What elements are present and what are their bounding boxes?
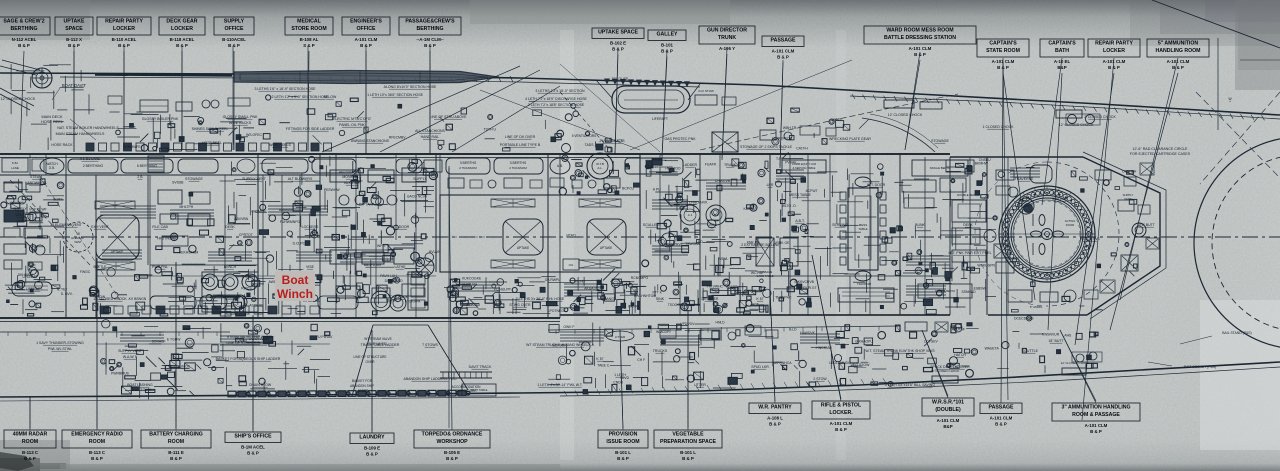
svg-text:B-101 L: B-101 L	[680, 450, 696, 455]
svg-text:A-101 CLM: A-101 CLM	[830, 421, 853, 426]
svg-text:B & P: B & P	[995, 422, 1007, 427]
svg-text:2 EXTRA FIRE BILLOW: 2 EXTRA FIRE BILLOW	[741, 243, 779, 247]
svg-text:ALT BLOWERS: ALT BLOWERS	[288, 177, 313, 181]
svg-text:S & P: S & P	[303, 43, 315, 48]
svg-text:BATTLE: BATTLE	[94, 265, 108, 269]
svg-text:12' CLOSED CHOCK: 12' CLOSED CHOCK	[888, 113, 923, 117]
svg-text:LLURBVFOC: LLURBVFOC	[772, 137, 793, 141]
svg-text:A-101 CLM: A-101 CLM	[355, 37, 378, 42]
svg-text:ROOM: ROOM	[89, 439, 105, 445]
svg-text:4 LETH 7'2"x 18'9" DISCHARGE: 4 LETH 7'2"x 18'9" DISCHARGE HOSE	[525, 97, 587, 101]
svg-text:DELOUSE: DELOUSE	[612, 77, 629, 81]
svg-text:PREPARATION SPACE: PREPARATION SPACE	[660, 439, 716, 445]
svg-text:DECK GEAR: DECK GEAR	[166, 19, 197, 25]
svg-text:CAT.FH: CAT.FH	[796, 146, 808, 150]
svg-text:HANDWHEEL: HANDWHEEL	[25, 181, 47, 185]
svg-text:BATH: BATH	[1055, 48, 1069, 54]
svg-text:LKR: LKR	[767, 183, 774, 187]
svg-text:SINGLE BERTH: SINGLE BERTH	[930, 166, 950, 170]
svg-text:A.1: A.1	[688, 213, 693, 217]
svg-text:DAVIT TRACK: DAVIT TRACK	[469, 365, 492, 369]
svg-text:B-105 E: B-105 E	[444, 450, 460, 455]
svg-text:STO HH: STO HH	[138, 388, 151, 392]
svg-text:DCECDMAB: DCECDMAB	[1014, 317, 1034, 321]
svg-text:SUPPLY: SUPPLY	[13, 207, 27, 211]
svg-text:A-101 CLM: A-101 CLM	[1085, 423, 1108, 428]
svg-text:E TGHW: E TGHW	[167, 337, 181, 341]
svg-text:VEG STOW: VEG STOW	[851, 363, 870, 367]
svg-text:TRUNK: TRUNK	[724, 163, 737, 167]
svg-text:3 LETHS 1'2"x 18'-0" SECTION: 3 LETHS 1'2"x 18'-0" SECTION	[535, 89, 585, 93]
svg-text:.BVUVN: .BVUVN	[428, 250, 441, 254]
svg-text:B & P: B & P	[1172, 65, 1184, 70]
svg-text:.AHS: .AHS	[1063, 333, 1072, 337]
svg-text:ABVVBN: ABVVBN	[234, 217, 248, 221]
svg-text:B&P: B&P	[1057, 65, 1066, 70]
svg-text:PANEL OIL PNK: PANEL OIL PNK	[339, 123, 365, 127]
svg-text:GACO NCVA: GACO NCVA	[407, 195, 428, 199]
svg-text:SINK: SINK	[656, 297, 665, 301]
svg-text:B & P: B & P	[446, 456, 458, 461]
svg-text:A-101 CLM: A-101 CLM	[772, 49, 795, 54]
svg-text:TOOL RACK: TOOL RACK	[388, 295, 409, 299]
svg-text:VENT: VENT	[74, 240, 82, 244]
svg-text:W.R. PANTRY: W.R. PANTRY	[758, 405, 792, 411]
svg-text:UPTAKE: UPTAKE	[111, 250, 124, 254]
svg-text:Boat: Boat	[282, 273, 309, 287]
svg-text:1 LETH: 1 LETH	[614, 373, 626, 377]
svg-text:.KV BSNGN: .KV BSNGN	[128, 297, 147, 301]
svg-text:READY SVC: READY SVC	[1080, 237, 1101, 241]
svg-text:LADDER: LADDER	[683, 163, 698, 167]
svg-text:1 LETH 10"x 36'6" SECTION HOSE: 1 LETH 10"x 36'6" SECTION HOSE	[367, 93, 424, 97]
svg-text:2 VENT DUCTS: 2 VENT DUCTS	[599, 139, 625, 143]
svg-text:GUN DIRECTOR: GUN DIRECTOR	[707, 28, 747, 34]
svg-text:WAUETA: WAUETA	[985, 346, 1000, 350]
svg-text:12' CLOSED CHOCK: 12' CLOSED CHOCK	[1061, 361, 1090, 365]
svg-text:N-112 ACEL: N-112 ACEL	[12, 37, 37, 42]
svg-text:FUAFR: FUAFR	[705, 163, 717, 167]
svg-text:K 57: K 57	[596, 357, 603, 361]
svg-text:BBNFD.MS: BBNFD.MS	[364, 263, 382, 267]
svg-text:LADDER: LADDER	[356, 389, 370, 393]
svg-text:RWSNVUR: RWSNVUR	[1042, 332, 1060, 336]
svg-text:REPAIR PARTY: REPAIR PARTY	[1095, 41, 1133, 47]
svg-text:BCPCU: BCPCU	[622, 187, 634, 191]
svg-text:GAS PROTEC PNK: GAS PROTEC PNK	[664, 137, 696, 141]
svg-text:CAPTAIN'S: CAPTAIN'S	[989, 41, 1017, 47]
svg-text:HOIST: HOIST	[1009, 257, 1021, 261]
svg-text:SAGE & CREW'2: SAGE & CREW'2	[3, 19, 44, 25]
svg-text:TRUCKS: TRUCKS	[653, 349, 668, 353]
svg-text:VISE: VISE	[306, 265, 315, 269]
svg-text:B & P: B & P	[228, 43, 240, 48]
svg-text:HELDVNCN: HELDVNCN	[339, 170, 358, 174]
svg-text:OFFICE: OFFICE	[356, 26, 376, 32]
svg-text:2 LETH 5'8"x14'6" BILL SAVING: 2 LETH 5'8"x14'6" BILL SAVING	[885, 383, 935, 387]
svg-text:W.T. DOOR: W.T. DOOR	[391, 225, 410, 229]
svg-text:CH F: CH F	[637, 358, 645, 362]
svg-text:WCTSE: WCTSE	[751, 271, 764, 275]
svg-text:W.R.S.R.*101: W.R.S.R.*101	[932, 400, 964, 406]
svg-text:BKMHW: BKMHW	[975, 162, 989, 166]
svg-text:B-111 E: B-111 E	[168, 450, 184, 455]
svg-text:ENGINEER'S: ENGINEER'S	[350, 19, 382, 25]
svg-text:FWGC: FWGC	[80, 270, 91, 274]
svg-text:SPACE: SPACE	[65, 26, 83, 32]
svg-text:UPTAKE: UPTAKE	[517, 246, 530, 250]
svg-text:WT STEAM TRUCKS W/HAND WHEELS: WT STEAM TRUCKS W/HAND WHEELS A	[526, 343, 594, 347]
svg-text:WLTO .O: WLTO .O	[782, 204, 796, 208]
svg-text:A-101 CLM: A-101 CLM	[937, 418, 960, 423]
svg-text:TRUNK: TRUNK	[718, 35, 736, 41]
svg-text:LOCKER: LOCKER	[113, 26, 135, 32]
svg-text:DESK: DESK	[963, 223, 973, 227]
svg-text:3" AMMUNITION HANDLING: 3" AMMUNITION HANDLING	[1061, 405, 1130, 411]
svg-text:1 LETH 4'x 30'-14" PWL W.T.: 1 LETH 4'x 30'-14" PWL W.T.	[537, 383, 583, 387]
svg-text:LIFERAFT: LIFERAFT	[652, 117, 668, 121]
svg-text:HANDLING ROOM: HANDLING ROOM	[1156, 48, 1201, 54]
svg-text:HOSE REEL: HOSE REEL	[202, 141, 222, 145]
svg-text:A-101 CLM: A-101 CLM	[990, 416, 1013, 421]
svg-text:PVSAE: PVSAE	[785, 160, 797, 164]
svg-text:SVSSB: SVSSB	[172, 180, 184, 184]
svg-text:S.B.I: S.B.I	[12, 161, 19, 165]
svg-text:G.B.: G.B.	[49, 166, 55, 170]
svg-text:A PU: A PU	[653, 188, 661, 192]
svg-text:B-113 C: B-113 C	[22, 450, 39, 455]
svg-text:KUKCOGKE: KUKCOGKE	[462, 277, 482, 281]
svg-text:STOWAGE: STOWAGE	[185, 177, 203, 181]
svg-text:LIFERAFT: LIFERAFT	[26, 287, 43, 291]
svg-text:STWG CUTR: STWG CUTR	[509, 303, 531, 307]
svg-text:PM.VWHC: PM.VWHC	[707, 285, 724, 289]
svg-text:5-IN GUN: 5-IN GUN	[1052, 197, 1068, 201]
svg-text:5 VENTILATORS: 5 VENTILATORS	[572, 134, 597, 138]
svg-text:AAUTAF: AAUTAF	[952, 327, 965, 331]
svg-text:LINE OF STRUCTURE OVER: LINE OF STRUCTURE OVER	[226, 341, 274, 345]
svg-text:RFECMBV: RFECMBV	[389, 136, 406, 140]
svg-text:FTOKRPA: FTOKRPA	[405, 300, 421, 304]
svg-text:5" AMMN: 5" AMMN	[1030, 305, 1043, 309]
svg-text:[AT&T]: [AT&T]	[566, 233, 575, 237]
svg-text:VEGETABLE: VEGETABLE	[672, 432, 704, 438]
svg-text:WORKSHOP: WORKSHOP	[436, 439, 468, 445]
svg-text:LATHE: LATHE	[394, 265, 406, 269]
svg-text:STOW: STOW	[95, 295, 106, 299]
svg-text:6 BERTHING: 6 BERTHING	[137, 164, 158, 168]
svg-text:WIRE REELS: WIRE REELS	[269, 143, 291, 147]
svg-text:Winch: Winch	[277, 287, 313, 301]
svg-text:FILE CAB: FILE CAB	[464, 303, 480, 307]
svg-text:2 LETH 1'2" x 9'-0" SECTION H: 2 LETH 1'2" x 9'-0" SECTION HOSE	[272, 95, 329, 99]
svg-text:B & P: B & P	[777, 55, 789, 60]
svg-text:REPAIR PARTY: REPAIR PARTY	[105, 19, 143, 25]
svg-text:12' CLOSED CHOCK: 12' CLOSED CHOCK	[1, 97, 36, 101]
svg-text:A.L.: A.L.	[597, 166, 603, 170]
svg-text:B-101 L: B-101 L	[615, 450, 631, 455]
svg-text:WFFF: WFFF	[377, 244, 386, 248]
svg-text:SPUD LKR: SPUD LKR	[751, 365, 769, 369]
svg-text:TRACK TABLE LADDER: TRACK TABLE LADDER	[361, 343, 400, 347]
svg-text:W.T. DOOR: W.T. DOOR	[867, 183, 886, 187]
svg-text:MHLTPH: MHLTPH	[180, 205, 194, 209]
svg-text:STOWAGE: STOWAGE	[931, 139, 949, 143]
svg-text:ABANDON SHIP: ABANDON SHIP	[350, 384, 374, 388]
svg-text:WS.OFEC: WS.OFEC	[246, 133, 262, 137]
svg-text:DESK: DESK	[225, 225, 235, 229]
svg-text:A-101 CLM: A-101 CLM	[1167, 59, 1190, 64]
svg-text:FUHWMNFG: FUHWMNFG	[280, 220, 301, 224]
svg-text:CNDD: CNDD	[613, 380, 623, 384]
svg-text:BOAT LASHING: BOAT LASHING	[127, 383, 153, 387]
svg-text:MAIN DECK: MAIN DECK	[41, 115, 63, 119]
svg-text:MESS: MESS	[1022, 204, 1030, 208]
svg-text:HAWDVK: HAWDVK	[800, 331, 815, 335]
svg-text:W.A.W.T.: W.A.W.T.	[123, 355, 137, 359]
svg-text:18 ELEMENT VENT: 18 ELEMENT VENT	[50, 223, 83, 227]
svg-text:2 LETHS 3'x 36'-0" P.HL HOSE: 2 LETHS 3'x 36'-0" P.HL HOSE	[516, 297, 565, 301]
svg-text:A.B.T.: A.B.T.	[795, 219, 805, 223]
svg-text:LINE OF DK OVER: LINE OF DK OVER	[505, 135, 536, 139]
svg-text:BUNK: BUNK	[915, 223, 925, 227]
svg-text:FTT K: FTT K	[653, 291, 663, 295]
svg-text:GALLEY: GALLEY	[656, 32, 678, 38]
svg-text:B & P: B & P	[24, 456, 36, 461]
svg-text:BAIL STAND (P&S): BAIL STAND (P&S)	[1222, 331, 1251, 335]
svg-text:BATTERY CHARGING: BATTERY CHARGING	[149, 432, 203, 438]
svg-text:CHWCVB: CHWCVB	[715, 179, 731, 183]
svg-text:TADS: TADS	[585, 143, 595, 147]
svg-text:STEAM VALVE SHIP WHEEL: STEAM VALVE SHIP WHEEL	[227, 335, 273, 339]
svg-text:DKHMNN: DKHMNN	[18, 273, 33, 277]
svg-text:WKKUGPN: WKKUGPN	[977, 264, 995, 268]
svg-text:PWRBMUS: PWRBMUS	[111, 372, 129, 376]
svg-text:TNANPHC: TNANPHC	[775, 296, 792, 300]
svg-text:LAUNDRY: LAUNDRY	[359, 435, 385, 441]
svg-text:1 CLOSED CHOCK: 1 CLOSED CHOCK	[983, 125, 1015, 129]
svg-text:PASSAGE&CREW'S: PASSAGE&CREW'S	[405, 19, 455, 25]
svg-text:STORE ROOM: STORE ROOM	[291, 26, 326, 32]
svg-text:GGBS: GGBS	[53, 197, 64, 201]
svg-text:BASKET FOR AQUEOUS SHIP LADDER: BASKET FOR AQUEOUS SHIP LADDER	[216, 357, 281, 361]
svg-text:2 TRANSOM: 2 TRANSOM	[459, 166, 477, 170]
svg-text:2 LETH 7'2"x 18'8" SECTION HO: 2 LETH 7'2"x 18'8" SECTION HOSE	[528, 103, 585, 107]
svg-text:2' CLOSED CHOCK: 2' CLOSED CHOCK	[1084, 115, 1116, 119]
svg-text:ASDP.SD: ASDP.SD	[249, 303, 264, 307]
svg-text:EMERGENCY RADIO: EMERGENCY RADIO	[71, 432, 123, 438]
svg-text:7 STOWS: 7 STOWS	[422, 343, 438, 347]
svg-text:B & P: B & P	[769, 422, 781, 427]
svg-text:SUPPLY: SUPPLY	[413, 177, 427, 181]
svg-text:LANE: LANE	[11, 166, 19, 170]
svg-text:B-1M ACEL: B-1M ACEL	[241, 445, 265, 450]
svg-text:DOOR: DOOR	[1066, 223, 1074, 227]
svg-text:EDRMWFE: EDRMWFE	[123, 145, 141, 149]
svg-text:3 BERTHS: 3 BERTHS	[510, 161, 527, 165]
svg-text:HNLD: HNLD	[716, 321, 726, 325]
svg-text:AEKHSTMM: AEKHSTMM	[179, 250, 198, 254]
svg-text:HFUTNCHL: HFUTNCHL	[157, 237, 175, 241]
svg-text:PASSAGE: PASSAGE	[989, 405, 1015, 411]
svg-text:B-101: B-101	[661, 43, 674, 48]
svg-text:BASKET FOR: BASKET FOR	[352, 379, 373, 383]
svg-text:A-108 L: A-108 L	[767, 416, 783, 421]
svg-text:18" BUTT: 18" BUTT	[1048, 339, 1064, 343]
svg-text:MEDICAL: MEDICAL	[297, 19, 321, 25]
svg-text:LOCKER: LOCKER	[171, 26, 193, 32]
svg-text:OIL: OIL	[569, 263, 574, 267]
svg-text:B-113 C: B-113 C	[89, 450, 106, 455]
svg-text:UTTER: UTTER	[694, 383, 706, 387]
svg-text:B-110ACEL: B-110ACEL	[222, 37, 246, 42]
svg-text:4'x4' STOW: 4'x4' STOW	[698, 89, 714, 93]
svg-text:STOWAGE OF 2 SKIPS TACKLE: STOWAGE OF 2 SKIPS TACKLE	[740, 145, 793, 149]
svg-text:TRAVERSE: TRAVERSE	[1015, 177, 1034, 181]
svg-text:ALONG 8'x10'0" SECTION HOSE: ALONG 8'x10'0" SECTION HOSE	[384, 85, 437, 89]
svg-text:OVER: OVER	[365, 360, 375, 364]
svg-text:STEAM: STEAM	[30, 175, 42, 179]
svg-text:GLOSSY SMALL PNK: GLOSSY SMALL PNK	[223, 115, 258, 119]
svg-text:. TL.T: . TL.T	[379, 258, 388, 262]
svg-text:LOCKERS: LOCKERS	[302, 225, 319, 229]
svg-text:3 BERTHS: 3 BERTHS	[460, 161, 477, 165]
svg-text:UPTAKE SPACE: UPTAKE SPACE	[598, 30, 638, 36]
svg-text:K 57: K 57	[756, 297, 763, 301]
svg-text:PORTABLE LINE TYPE B: PORTABLE LINE TYPE B	[500, 143, 541, 147]
svg-text:--A-1M CLM--: --A-1M CLM--	[416, 37, 444, 42]
svg-text:CHAIN STOW: CHAIN STOW	[249, 383, 272, 387]
svg-text:BATTLE DRESSING STATION: BATTLE DRESSING STATION	[884, 35, 956, 41]
svg-text:2 TRANSOM: 2 TRANSOM	[509, 166, 527, 170]
svg-text:DRESSER: DRESSER	[702, 297, 719, 301]
svg-text:TORPEDO& ORDNANCE: TORPEDO& ORDNANCE	[422, 432, 483, 438]
svg-text:BAIT SOCKET (P&S): BAIT SOCKET (P&S)	[1184, 365, 1216, 369]
svg-text:B & P: B & P	[617, 456, 629, 461]
svg-text:B.KKVCRVB: B.KKVCRVB	[795, 280, 815, 284]
svg-text:HATCH: HATCH	[954, 353, 966, 357]
svg-text:SCULLERY: SCULLERY	[643, 223, 662, 227]
svg-text:BERTHING: BERTHING	[10, 26, 37, 32]
svg-text:RCBCMPO: RCBCMPO	[631, 276, 649, 280]
svg-text:SHIP LADDER: SHIP LADDER	[455, 389, 477, 393]
svg-text:LOCKER: LOCKER	[1103, 48, 1125, 54]
svg-text:HOSE RACK: HOSE RACK	[51, 143, 73, 147]
svg-text:WHDUR.GT: WHDUR.GT	[798, 286, 817, 290]
svg-text:SOKACF: SOKACF	[152, 339, 166, 343]
svg-text:FILE CAB: FILE CAB	[152, 225, 168, 229]
svg-text:TDTH U: TDTH U	[484, 127, 497, 131]
svg-text:TAEE C.: TAEE C.	[597, 363, 610, 367]
svg-text:WBH.TR: WBH.TR	[783, 126, 797, 130]
svg-text:HOSE REEL: HOSE REEL	[41, 120, 63, 124]
svg-text:12'-6" RAD CLEARANCE CIRCLE: 12'-6" RAD CLEARANCE CIRCLE	[1133, 147, 1188, 151]
svg-text:2 STOW: 2 STOW	[813, 377, 827, 381]
svg-text:12' CLOSED CHOCK: 12' CLOSED CHOCK	[931, 369, 960, 373]
svg-text:10'6" BUTT: 10'6" BUTT	[1137, 223, 1156, 227]
svg-text:WIRE RACKS: WIRE RACKS	[229, 121, 252, 125]
svg-text:FU PBVAV: FU PBVAV	[316, 335, 333, 339]
svg-text:VENT: VENT	[15, 213, 25, 217]
svg-text:B & P: B & P	[1108, 65, 1120, 70]
svg-text:TRANSOM: TRANSOM	[857, 282, 872, 286]
svg-text:OWK F: OWK F	[563, 325, 574, 329]
svg-text:(DOUBLE): (DOUBLE)	[935, 407, 961, 413]
svg-text:FITTINGS FOR SIDE LADDER: FITTINGS FOR SIDE LADDER	[286, 127, 335, 131]
svg-text:MESS TABLE: MESS TABLE	[789, 193, 811, 197]
svg-text:2 B: 2 B	[137, 175, 143, 179]
svg-text:SERVING: SERVING	[832, 223, 848, 227]
svg-text:PASSAGE: PASSAGE	[771, 38, 797, 44]
svg-text:& SERVING TABLE: & SERVING TABLE	[793, 166, 816, 170]
svg-text:B & P: B & P	[91, 456, 103, 461]
svg-text:RIFLE & PISTOL: RIFLE & PISTOL	[821, 403, 862, 409]
svg-text:AEFRNHCA: AEFRNHCA	[773, 361, 792, 365]
svg-text:SUPPLY: SUPPLY	[224, 19, 245, 25]
svg-text:LINE OF STRUCTURE: LINE OF STRUCTURE	[354, 355, 387, 359]
svg-text:B&P: B&P	[943, 424, 952, 429]
svg-text:FOR EJECTED CARTRIDGE CASES: FOR EJECTED CARTRIDGE CASES	[1130, 152, 1191, 156]
svg-text:AWNING STANCHIONS: AWNING STANCHIONS	[351, 139, 390, 143]
svg-text:B & P: B & P	[1090, 429, 1102, 434]
svg-text:PROVISION: PROVISION	[609, 432, 638, 438]
svg-text:BERTHING: BERTHING	[416, 26, 443, 32]
svg-text:B & P: B & P	[682, 456, 694, 461]
svg-text:SHIP'S OFFICE: SHIP'S OFFICE	[234, 434, 272, 440]
svg-text:ALL STANCHIONS: ALL STANCHIONS	[415, 129, 445, 133]
svg-text:WMCDP: WMCDP	[656, 330, 670, 334]
svg-text:SHINES SIGNAL REEL: SHINES SIGNAL REEL	[192, 127, 229, 131]
svg-text:A-101 CLM: A-101 CLM	[909, 46, 932, 51]
svg-text:B & P: B & P	[247, 451, 259, 456]
svg-text:B & P: B & P	[170, 456, 182, 461]
svg-text:B & P: B & P	[835, 427, 847, 432]
svg-text:MOVEABLE: MOVEABLE	[342, 175, 362, 179]
svg-text:B-118 ACEL: B-118 ACEL	[170, 37, 195, 42]
svg-text:BENCH: BENCH	[224, 265, 237, 269]
svg-text:NSWL: NSWL	[719, 257, 729, 261]
svg-text:STATE ROOM: STATE ROOM	[986, 48, 1020, 54]
svg-text:2 BERTHING: 2 BERTHING	[83, 164, 104, 168]
svg-text:A 1-B1 LANE: A 1-B1 LANE	[80, 157, 101, 161]
svg-text:ROOM: ROOM	[22, 439, 38, 445]
svg-text:UTNHBH: UTNHBH	[1122, 170, 1137, 174]
svg-text:GRILL: GRILL	[707, 223, 717, 227]
svg-text:EO .: EO .	[698, 240, 705, 244]
svg-text:B-102 E: B-102 E	[610, 41, 626, 46]
svg-text:MAIN STEAM HANDWHEELS: MAIN STEAM HANDWHEELS	[56, 132, 105, 136]
svg-text:W.T. STEAM TRUNK ELW'THK SHOP: W.T. STEAM TRUNK ELW'THK SHOP VLVS	[865, 349, 935, 353]
svg-text:B-112 X: B-112 X	[66, 37, 82, 42]
svg-text:B & P: B & P	[366, 452, 378, 457]
svg-text:UPTAKE: UPTAKE	[600, 246, 613, 250]
svg-text:40MM RADAR: 40MM RADAR	[13, 432, 48, 438]
svg-text:3 LETHS 1'6" x 18'-9" SECTION: 3 LETHS 1'6" x 18'-9" SECTION HOSE	[254, 87, 316, 91]
svg-text:BELOW: BELOW	[324, 95, 337, 99]
svg-text:PWR PNL: PWR PNL	[152, 265, 168, 269]
svg-text:A.B.: A.B.	[557, 164, 563, 168]
svg-text:.HNCSMW: .HNCSMW	[815, 346, 832, 350]
svg-text:NAT. STEAM BOILER HANDWHEELS: NAT. STEAM BOILER HANDWHEELS	[57, 126, 119, 130]
svg-text:LOCKER.: LOCKER.	[829, 410, 853, 416]
svg-text:LET. PNK PWR EXIT PNEL: LET. PNK PWR EXIT PNEL	[948, 251, 991, 255]
svg-text:B-108 AL: B-108 AL	[300, 37, 319, 42]
svg-text:CAPTAIN'S: CAPTAIN'S	[1048, 41, 1076, 47]
svg-text:WARD ROOM MESS ROOM: WARD ROOM MESS ROOM	[886, 28, 953, 34]
svg-text:B.LD: B.LD	[789, 328, 797, 332]
svg-text:B-110 ACEL: B-110 ACEL	[112, 37, 137, 42]
svg-text:GLOSSY BOILER PNK: GLOSSY BOILER PNK	[142, 117, 179, 121]
